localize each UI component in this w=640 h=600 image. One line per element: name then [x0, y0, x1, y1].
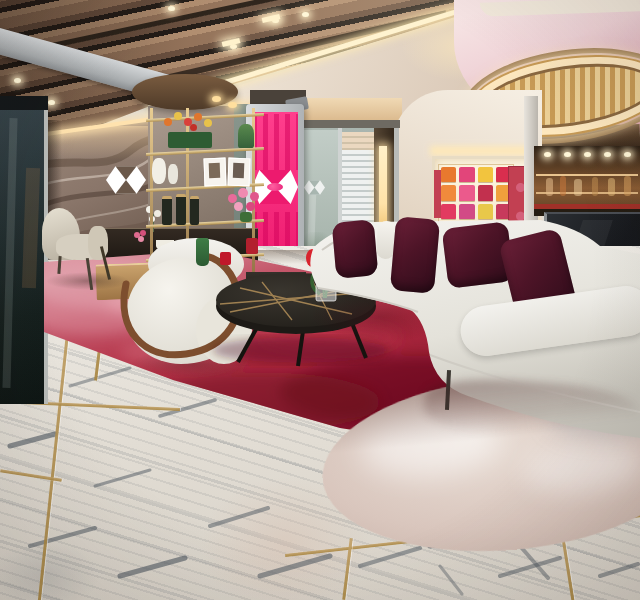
photo-hsbc-lounge-interior	[0, 0, 640, 600]
burgundy-cushion	[332, 219, 379, 278]
burgundy-cushion	[390, 216, 440, 294]
